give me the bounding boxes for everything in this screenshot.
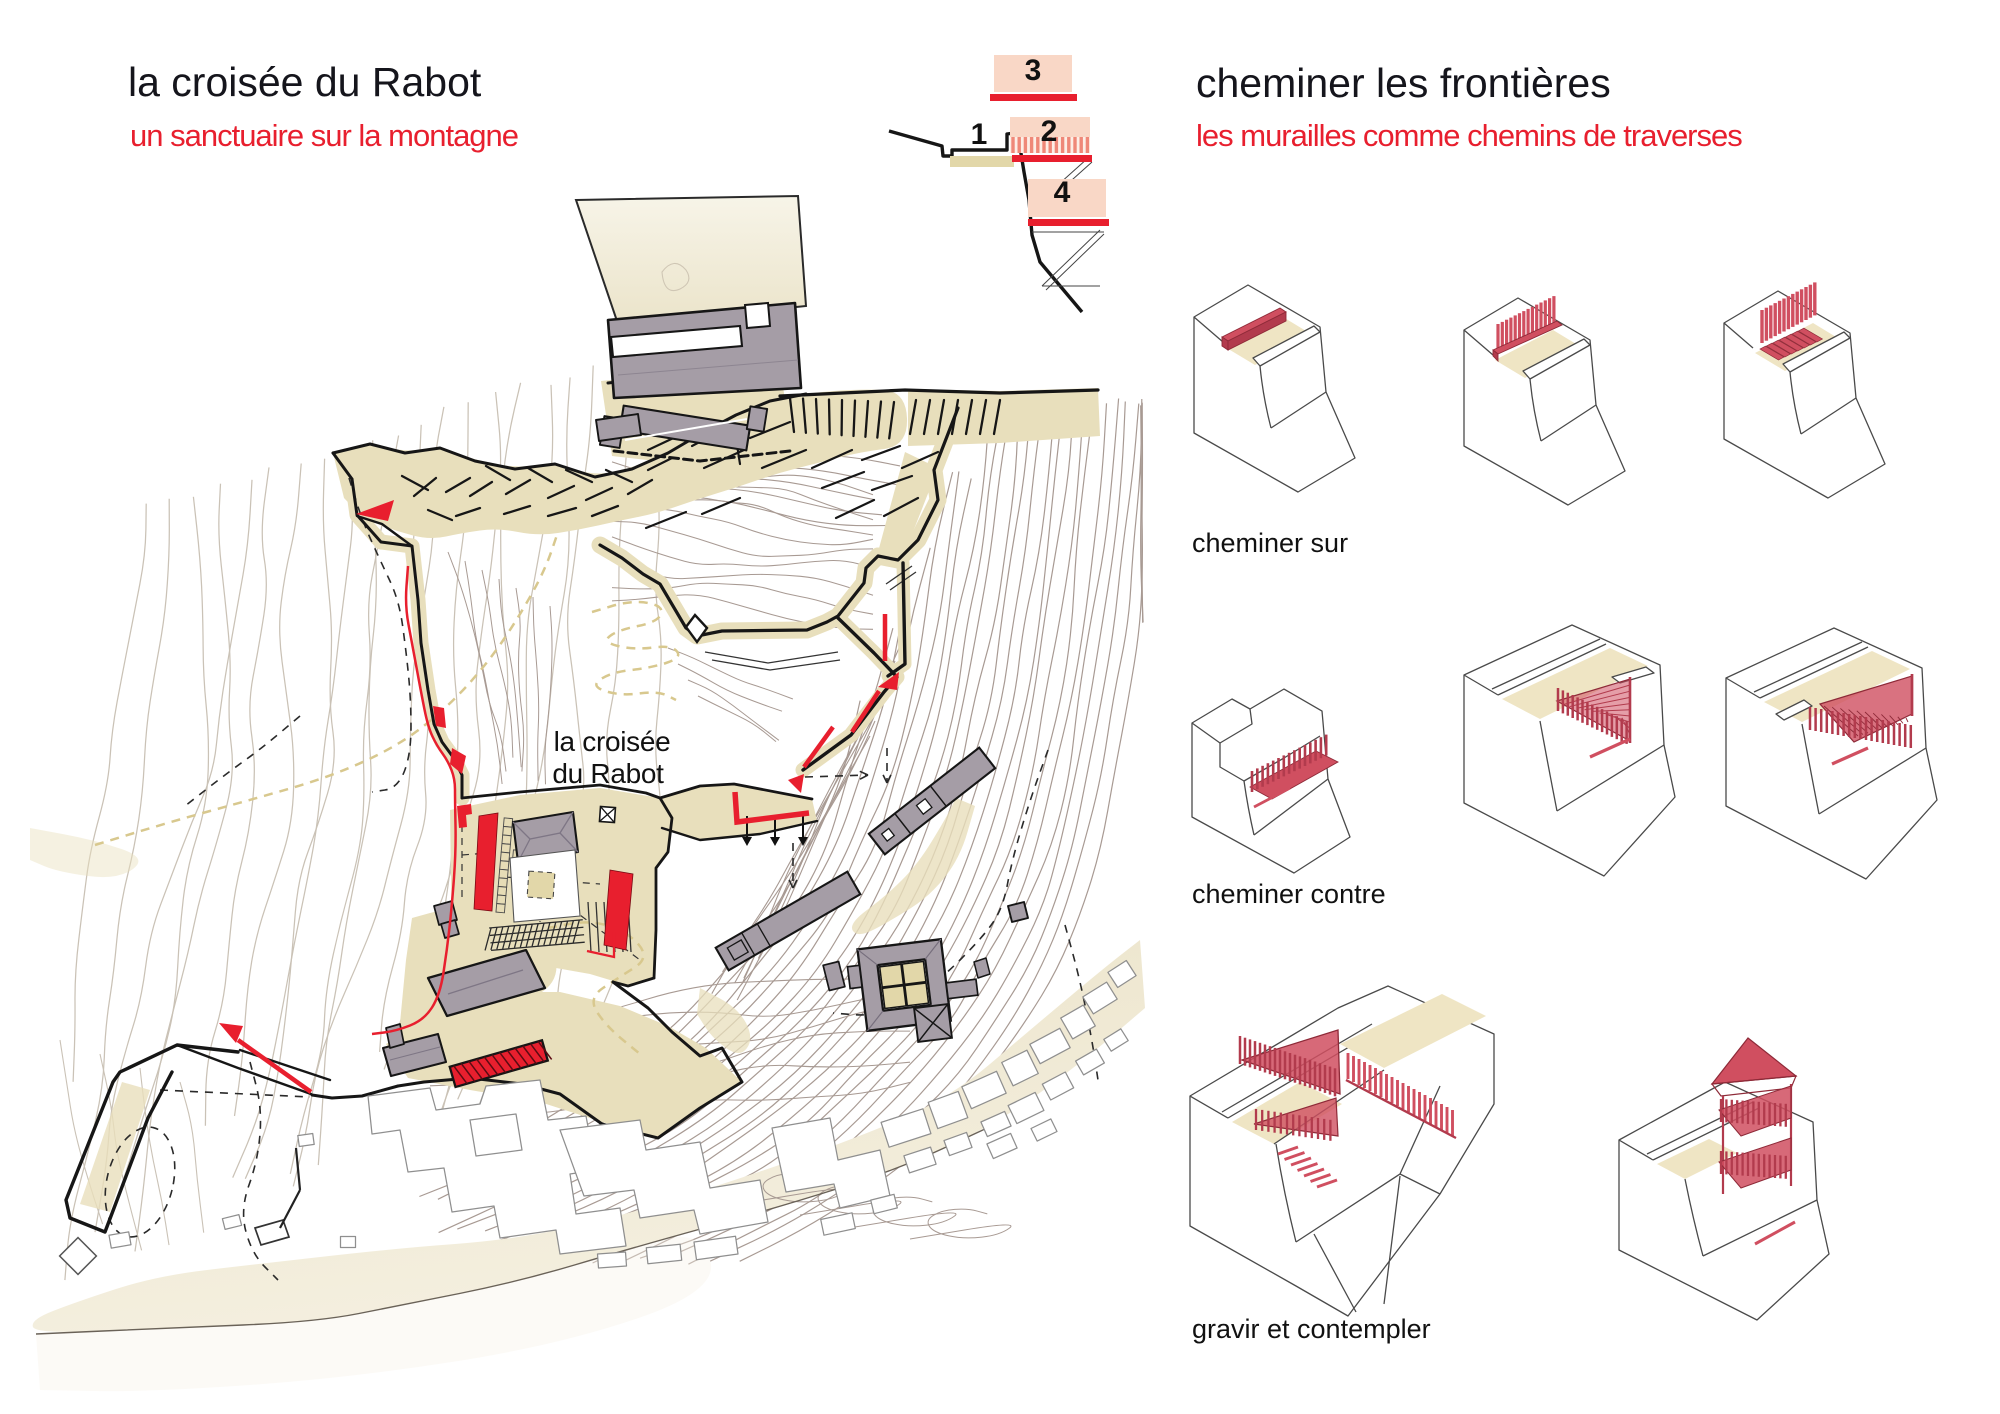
- svg-text:un sanctuaire sur la montagne: un sanctuaire sur la montagne: [130, 118, 518, 153]
- svg-text:du Rabot: du Rabot: [552, 758, 664, 789]
- svg-text:la croisée: la croisée: [554, 726, 671, 757]
- svg-text:cheminer sur: cheminer sur: [1192, 528, 1348, 558]
- svg-text:cheminer contre: cheminer contre: [1192, 879, 1386, 909]
- svg-text:1: 1: [971, 118, 988, 151]
- svg-text:4: 4: [1054, 176, 1071, 209]
- svg-text:gravir et contempler: gravir et contempler: [1192, 1314, 1431, 1344]
- svg-text:2: 2: [1041, 115, 1058, 148]
- svg-text:les murailles comme chemins de: les murailles comme chemins de traverses: [1196, 118, 1742, 153]
- svg-text:la croisée du Rabot: la croisée du Rabot: [128, 59, 482, 105]
- svg-text:3: 3: [1025, 54, 1042, 87]
- svg-text:cheminer les frontières: cheminer les frontières: [1196, 60, 1611, 106]
